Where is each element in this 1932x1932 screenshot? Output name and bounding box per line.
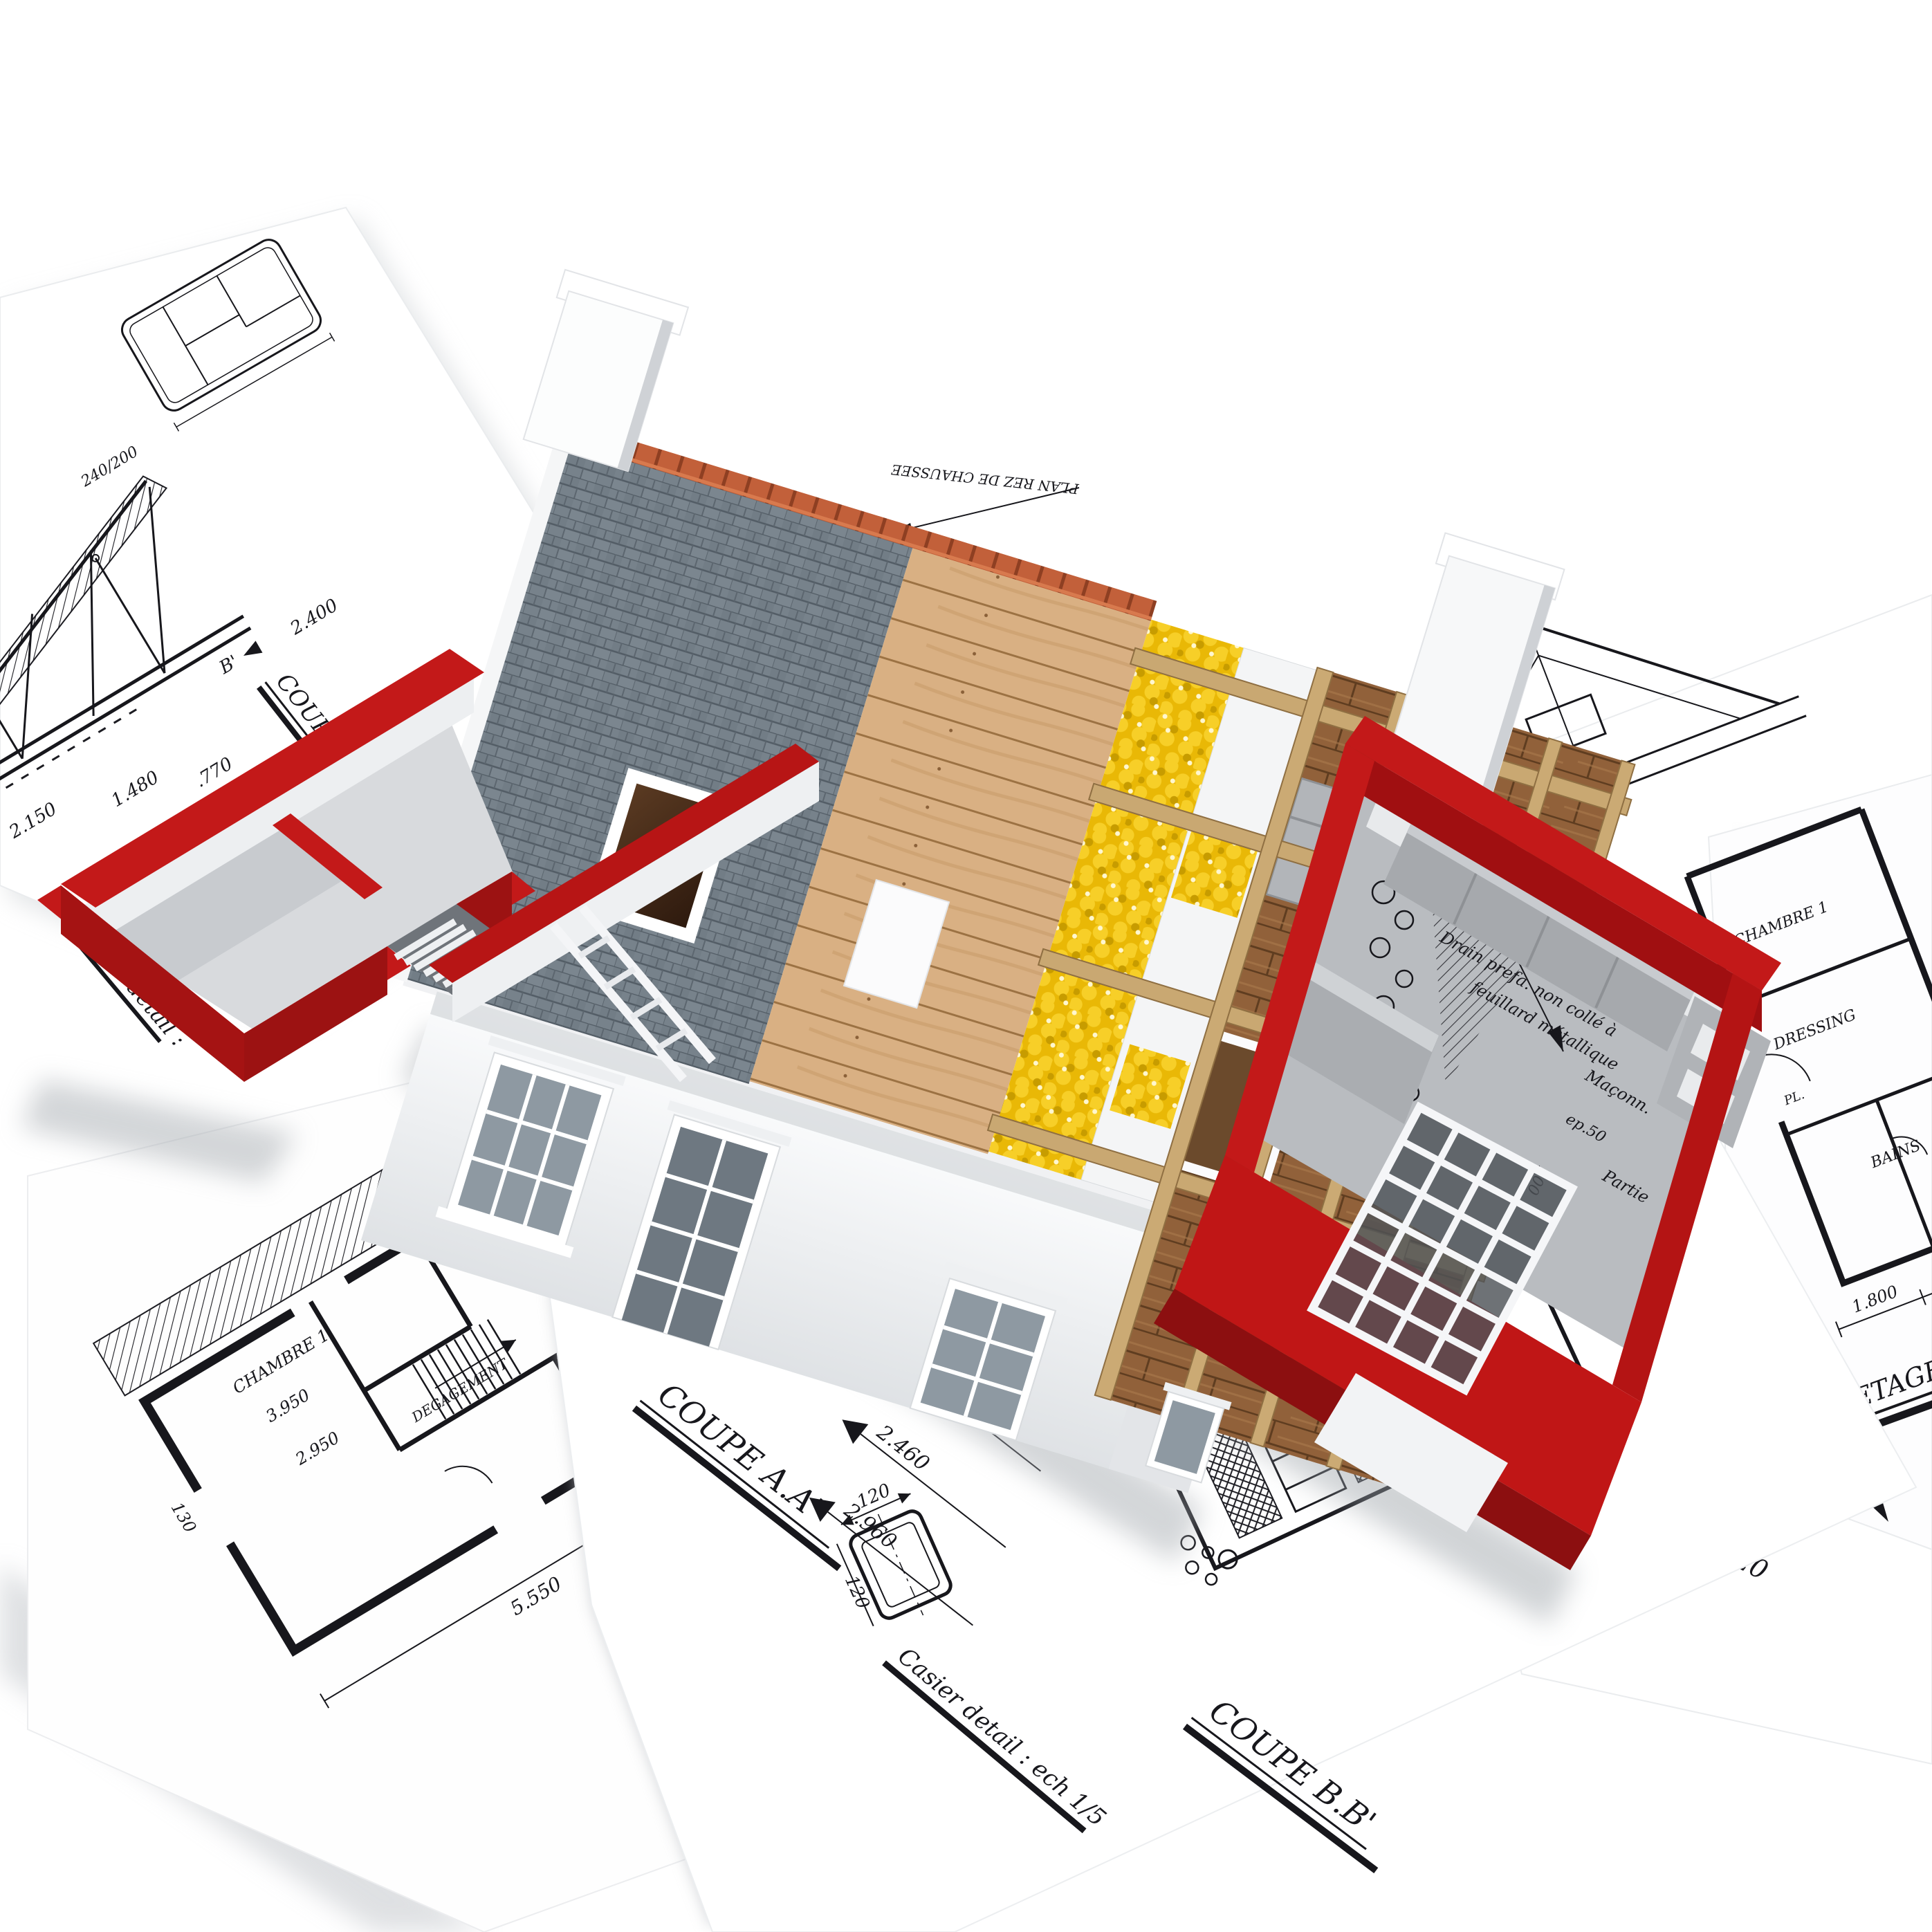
architecture-render-scene: 2.150 1.480 .770 2.400 240/200 B' COUPE … bbox=[0, 0, 1932, 1932]
scene-canvas: 2.150 1.480 .770 2.400 240/200 B' COUPE … bbox=[0, 0, 1932, 1932]
